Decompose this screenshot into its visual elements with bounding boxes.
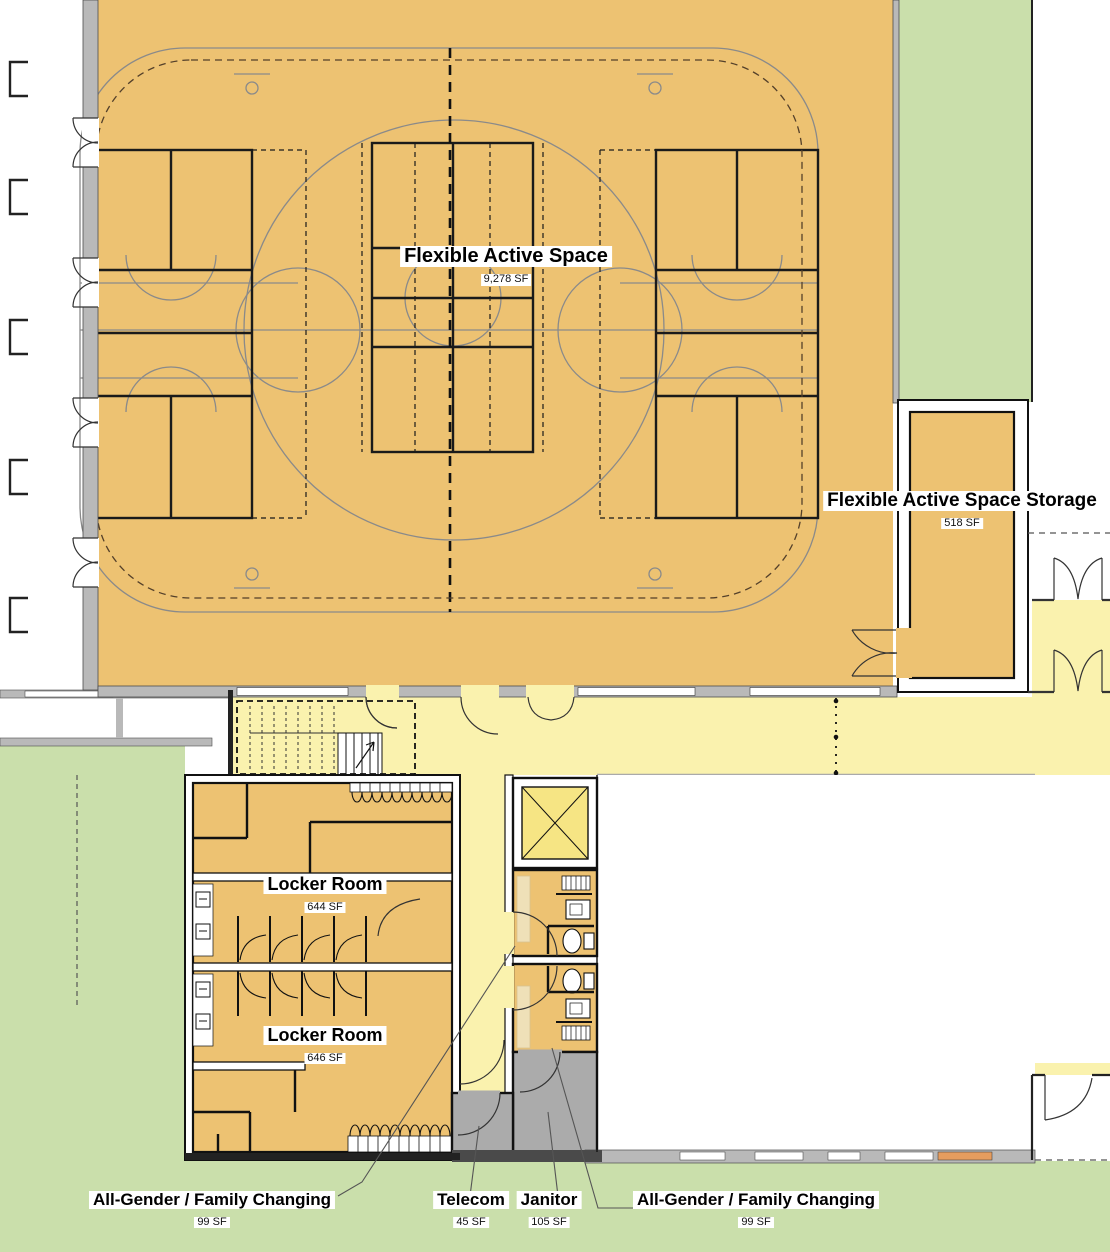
room-label-telecom: Telecom 45 SF bbox=[433, 1191, 509, 1230]
gym-west-wall bbox=[10, 0, 99, 690]
room-name: Janitor bbox=[517, 1191, 582, 1209]
telecom-room bbox=[452, 1091, 513, 1153]
room-name: All-Gender / Family Changing bbox=[633, 1191, 879, 1209]
room-label-locker-room-north: Locker Room 644 SF bbox=[263, 875, 386, 915]
room-area: 99 SF bbox=[194, 1217, 229, 1229]
janitor-room bbox=[513, 1050, 597, 1153]
room-label-locker-room-south: Locker Room 646 SF bbox=[263, 1026, 386, 1066]
bench bbox=[517, 876, 530, 942]
toilet-icon bbox=[563, 969, 581, 993]
sink-icon bbox=[566, 999, 590, 1018]
room-name: Locker Room bbox=[263, 875, 386, 894]
column-bracket-icons bbox=[10, 62, 28, 632]
room-name: Locker Room bbox=[263, 1026, 386, 1045]
floor-plan-drawing bbox=[0, 0, 1110, 1252]
room-area: 646 SF bbox=[304, 1053, 345, 1065]
room-label-janitor: Janitor 105 SF bbox=[517, 1191, 582, 1230]
sink-icon bbox=[566, 900, 590, 919]
room-area: 518 SF bbox=[941, 518, 982, 530]
room-label-flexible-active-space: Flexible Active Space 9,278 SF bbox=[400, 246, 612, 287]
room-name: All-Gender / Family Changing bbox=[89, 1191, 335, 1209]
room-area: 45 SF bbox=[453, 1217, 488, 1229]
room-area: 105 SF bbox=[528, 1217, 569, 1229]
room-area: 9,278 SF bbox=[481, 274, 532, 286]
room-area: 644 SF bbox=[304, 902, 345, 914]
room-label-all-gender-family-changing-east: All-Gender / Family Changing 99 SF bbox=[633, 1191, 879, 1230]
elevator-shaft bbox=[513, 778, 597, 868]
room-label-flexible-active-space-storage: Flexible Active Space Storage 518 SF bbox=[823, 491, 1101, 531]
room-name: Flexible Active Space bbox=[400, 246, 612, 267]
changing-room-north bbox=[503, 870, 597, 956]
room-area: 99 SF bbox=[738, 1217, 773, 1229]
gym-east-wall bbox=[893, 0, 899, 403]
toilet-icon bbox=[563, 929, 581, 953]
room-name: Flexible Active Space Storage bbox=[823, 491, 1101, 511]
flexible-active-space-floor bbox=[98, 0, 893, 686]
room-name: Telecom bbox=[433, 1191, 509, 1209]
bench bbox=[517, 986, 530, 1048]
floor-plan: Flexible Active Space 9,278 SF Flexible … bbox=[0, 0, 1110, 1252]
changing-room-south bbox=[503, 964, 597, 1052]
room-label-all-gender-family-changing-west: All-Gender / Family Changing 99 SF bbox=[89, 1191, 335, 1230]
